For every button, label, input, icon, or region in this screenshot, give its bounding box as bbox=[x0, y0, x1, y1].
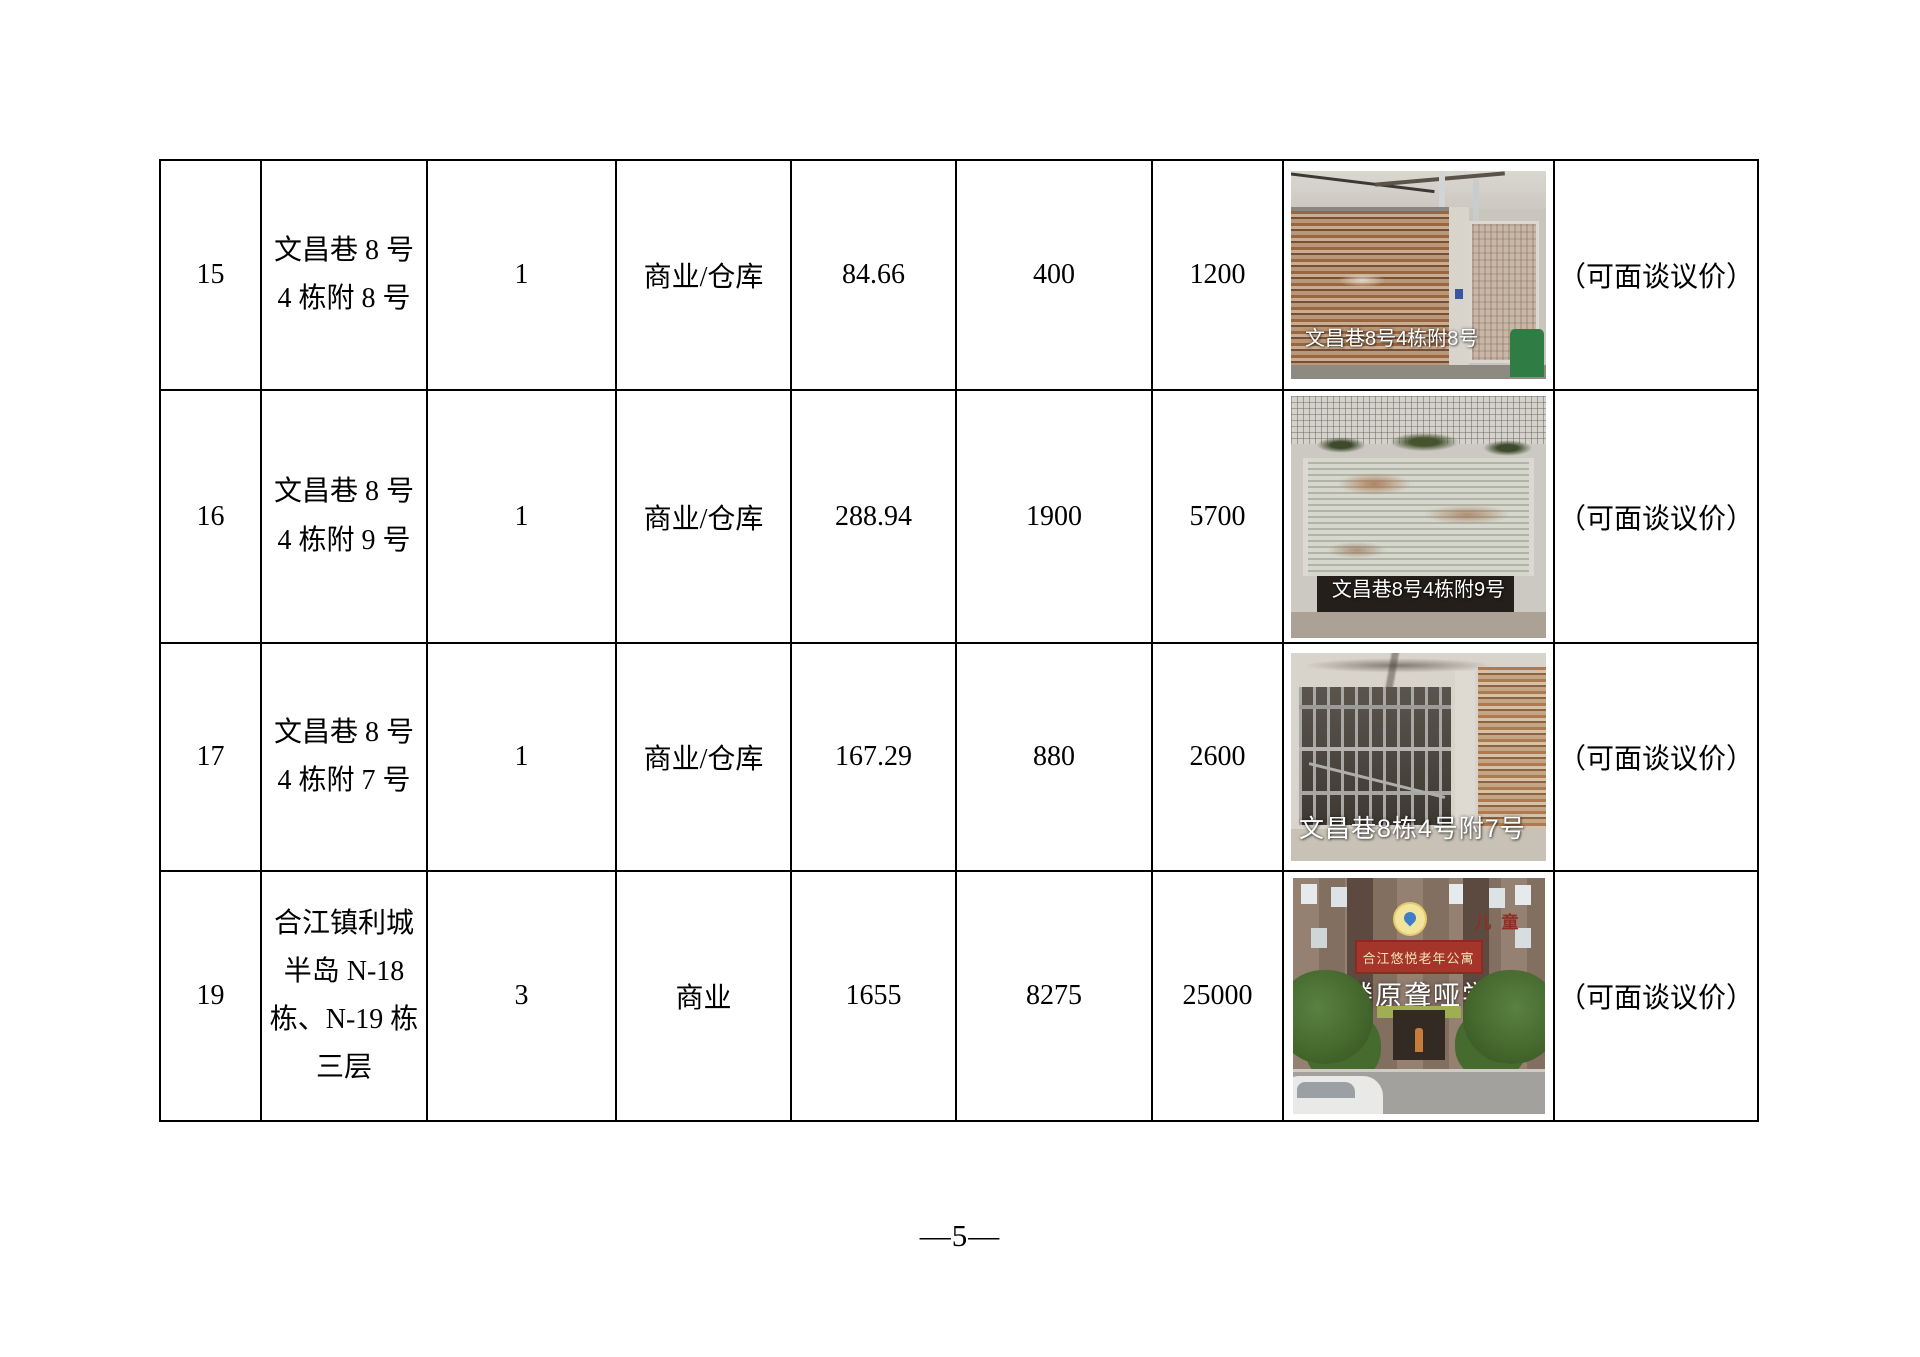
photo-trash-bin bbox=[1510, 329, 1544, 377]
photo-gate-rail bbox=[1299, 747, 1451, 751]
cell-price-2: 2600 bbox=[1152, 643, 1283, 871]
photo-rusty-shutter bbox=[1478, 667, 1546, 829]
cell-quantity: 3 bbox=[427, 871, 616, 1121]
cell-usage: 商业/仓库 bbox=[616, 643, 791, 871]
photo-plants bbox=[1297, 430, 1542, 460]
photo-ground bbox=[1291, 365, 1546, 379]
photo-address-plate bbox=[1455, 289, 1463, 299]
cell-area: 84.66 bbox=[791, 160, 956, 390]
cell-price-1: 1900 bbox=[956, 390, 1152, 643]
cell-photo: 文昌巷8号4栋附9号 bbox=[1283, 390, 1554, 643]
cell-no: 16 bbox=[160, 390, 261, 643]
property-photo: 文昌巷8号4栋附9号 bbox=[1291, 396, 1546, 638]
photo-tree-right bbox=[1463, 970, 1545, 1064]
photo-metal-gate bbox=[1299, 687, 1451, 825]
property-photo: 文昌巷8号4栋附8号 bbox=[1291, 171, 1546, 379]
cell-price-2: 1200 bbox=[1152, 160, 1283, 390]
cell-price-1: 400 bbox=[956, 160, 1152, 390]
photo-tree-left bbox=[1293, 970, 1373, 1064]
cell-area: 288.94 bbox=[791, 390, 956, 643]
cell-remark: （可面谈议价） bbox=[1554, 871, 1758, 1121]
table-row: 15 文昌巷 8 号 4 栋附 8 号 1 商业/仓库 84.66 400 12… bbox=[160, 160, 1758, 390]
photo-red-sign: 合江悠悦老年公寓 bbox=[1355, 940, 1483, 974]
photo-caption: 文昌巷8号4栋附9号 bbox=[1291, 573, 1546, 602]
cell-no: 17 bbox=[160, 643, 261, 871]
property-photo: 文昌巷8栋4号附7号 bbox=[1291, 653, 1546, 861]
cell-quantity: 1 bbox=[427, 390, 616, 643]
cell-remark: （可面谈议价） bbox=[1554, 390, 1758, 643]
photo-round-logo bbox=[1393, 902, 1427, 936]
cell-price-1: 8275 bbox=[956, 871, 1152, 1121]
cell-no: 19 bbox=[160, 871, 261, 1121]
page-number: —5— bbox=[0, 1218, 1920, 1254]
cell-area: 167.29 bbox=[791, 643, 956, 871]
property-table: 15 文昌巷 8 号 4 栋附 8 号 1 商业/仓库 84.66 400 12… bbox=[159, 159, 1759, 1122]
photo-building-text: 儿童 bbox=[1475, 908, 1529, 933]
cell-remark: （可面谈议价） bbox=[1554, 160, 1758, 390]
cell-remark: （可面谈议价） bbox=[1554, 643, 1758, 871]
cell-no: 15 bbox=[160, 160, 261, 390]
photo-ground bbox=[1291, 612, 1546, 638]
cell-location: 合江镇利城 半岛 N-18 栋、N-19 栋 三层 bbox=[261, 871, 427, 1121]
cell-usage: 商业 bbox=[616, 871, 791, 1121]
cell-quantity: 1 bbox=[427, 160, 616, 390]
cell-location: 文昌巷 8 号 4 栋附 9 号 bbox=[261, 390, 427, 643]
cell-price-1: 880 bbox=[956, 643, 1152, 871]
photo-windows bbox=[1301, 884, 1317, 904]
photo-car-window bbox=[1297, 1082, 1355, 1098]
photo-white-car bbox=[1293, 1076, 1383, 1114]
cell-photo: 儿童 合江悠悦老年公寓 三楼原聋哑学校 bbox=[1283, 871, 1554, 1121]
photo-caption: 文昌巷8栋4号附7号 bbox=[1299, 809, 1526, 845]
table-row: 19 合江镇利城 半岛 N-18 栋、N-19 栋 三层 3 商业 1655 8… bbox=[160, 871, 1758, 1121]
photo-caption: 文昌巷8号4栋附8号 bbox=[1305, 322, 1478, 351]
cell-usage: 商业/仓库 bbox=[616, 390, 791, 643]
cell-price-2: 25000 bbox=[1152, 871, 1283, 1121]
table-row: 17 文昌巷 8 号 4 栋附 7 号 1 商业/仓库 167.29 880 2… bbox=[160, 643, 1758, 871]
table-row: 16 文昌巷 8 号 4 栋附 9 号 1 商业/仓库 288.94 1900 … bbox=[160, 390, 1758, 643]
cell-location: 文昌巷 8 号 4 栋附 8 号 bbox=[261, 160, 427, 390]
photo-rusty-shutter bbox=[1303, 458, 1534, 576]
cell-area: 1655 bbox=[791, 871, 956, 1121]
cell-photo: 文昌巷8栋4号附7号 bbox=[1283, 643, 1554, 871]
cell-location: 文昌巷 8 号 4 栋附 7 号 bbox=[261, 643, 427, 871]
cell-usage: 商业/仓库 bbox=[616, 160, 791, 390]
cell-price-2: 5700 bbox=[1152, 390, 1283, 643]
document-page: 15 文昌巷 8 号 4 栋附 8 号 1 商业/仓库 84.66 400 12… bbox=[0, 0, 1920, 1357]
property-photo: 儿童 合江悠悦老年公寓 三楼原聋哑学校 bbox=[1293, 878, 1545, 1114]
cell-quantity: 1 bbox=[427, 643, 616, 871]
photo-person bbox=[1415, 1028, 1423, 1052]
cell-photo: 文昌巷8号4栋附8号 bbox=[1283, 160, 1554, 390]
